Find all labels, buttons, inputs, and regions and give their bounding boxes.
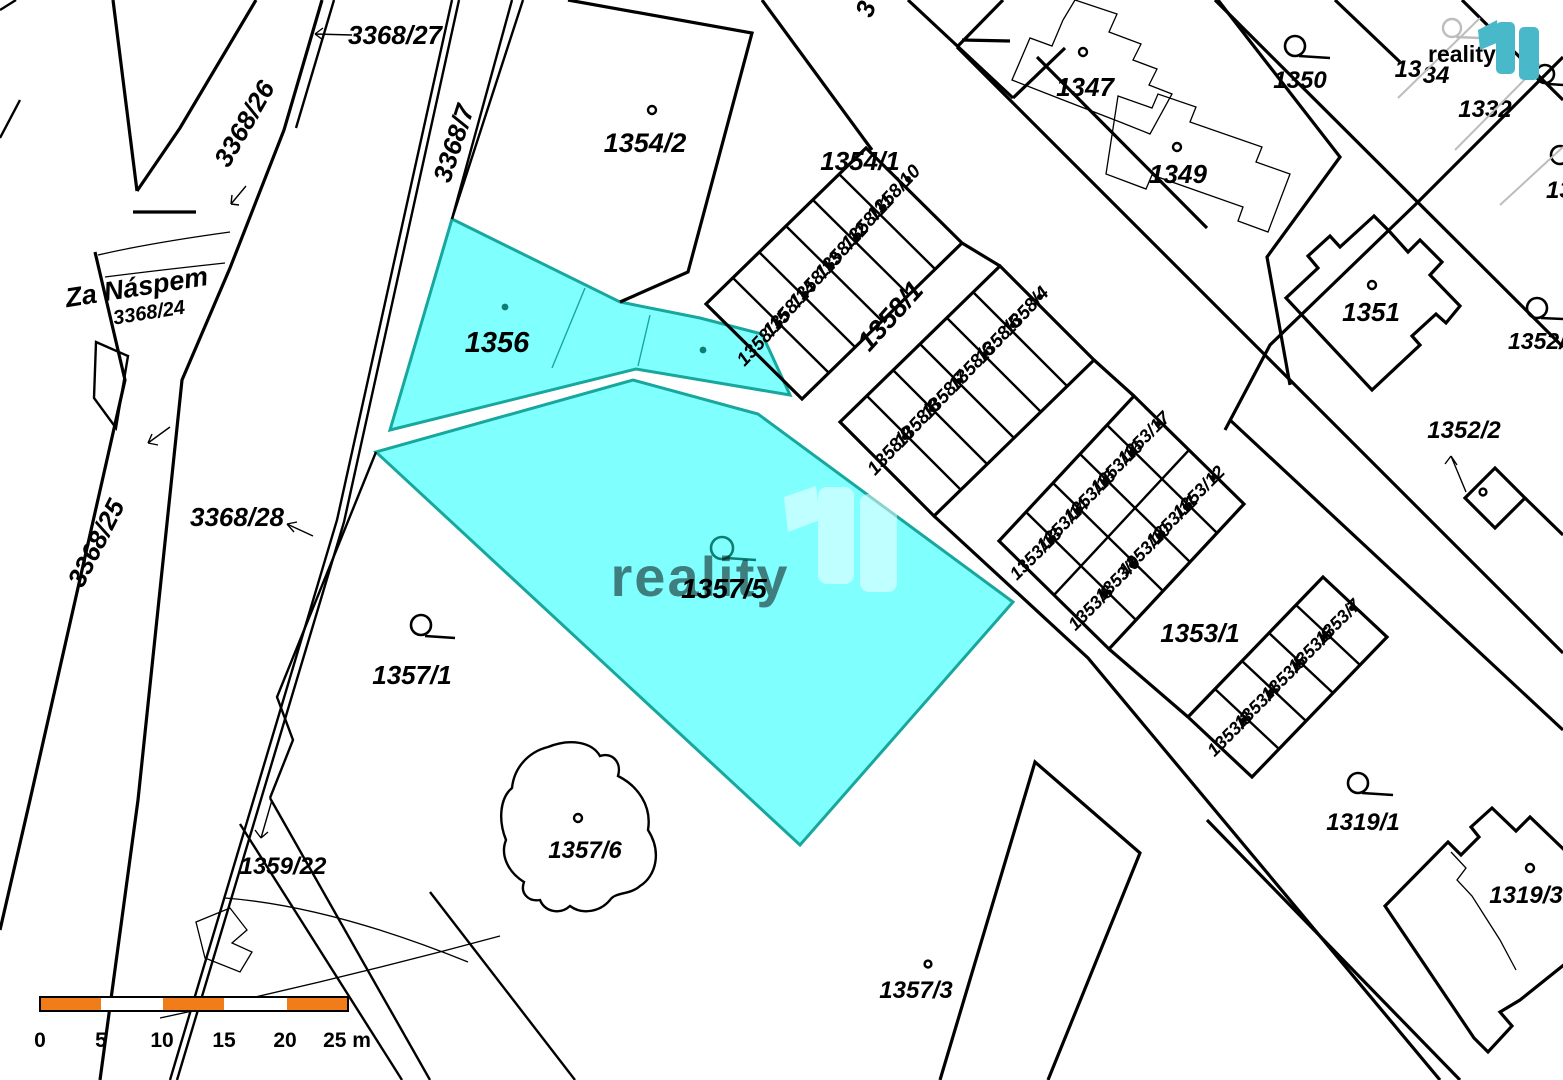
arrow-3368-28 xyxy=(287,522,313,536)
scale-tick-5: 5 xyxy=(95,1029,107,1052)
scale-tick-15: 15 xyxy=(212,1029,236,1052)
pond-1357-6 xyxy=(501,742,656,911)
parcel-label-1357-1: 1357/1 xyxy=(372,660,452,690)
landuse-icon xyxy=(411,615,455,638)
parcel-label-1352-2: 1352/2 xyxy=(1427,417,1501,444)
arrow-1352-2 xyxy=(1445,456,1466,492)
arrow-junction xyxy=(231,186,246,205)
parcel-label-1357-6: 1357/6 xyxy=(548,837,622,864)
parcel-label-1351: 1351 xyxy=(1342,297,1400,327)
parcel-label-1353-1: 1353/1 xyxy=(1160,618,1240,648)
landuse-icon xyxy=(1527,298,1563,319)
parcel-label-1354-2: 1354/2 xyxy=(604,128,687,158)
highlight-parcel-1357-5 xyxy=(376,380,1013,845)
building-1319-3-inner xyxy=(1451,852,1516,970)
landuse-icon xyxy=(1348,773,1393,795)
highlighted-parcels xyxy=(376,219,1013,845)
scale-tick-25m: 25 m xyxy=(323,1029,371,1052)
building-1352-2 xyxy=(1465,468,1525,528)
parcel-label-3368-27: 3368/27 xyxy=(348,20,444,50)
parcel-label-1359-22: 1359/22 xyxy=(240,853,327,880)
map-canvas: 3368/27 3368/26 3368/7 3 Za Náspem 3368/… xyxy=(0,0,1563,1080)
arrow-3368-27 xyxy=(315,28,352,40)
building-1319-3 xyxy=(1385,808,1563,1052)
scale-bar-labels: 0 5 10 15 20 25 m xyxy=(34,1029,371,1052)
scale-bar: 0 5 10 15 20 25 m xyxy=(34,997,371,1052)
parcel-label-1349: 1349 xyxy=(1149,159,1207,189)
parcel-label-3368-26: 3368/26 xyxy=(208,75,281,172)
parcel-label-1353-3: 1353/3 xyxy=(1203,707,1256,760)
edge-cut-label: 3 xyxy=(849,0,882,21)
landuse-icon xyxy=(1285,36,1330,58)
parcel-label-1354-1: 1354/1 xyxy=(820,146,900,176)
parcel-label-1347: 1347 xyxy=(1056,72,1115,102)
landuse-icon xyxy=(1536,65,1563,85)
arrow-3368-25 xyxy=(148,427,170,445)
parcel-label-1353-13: 1353/13 xyxy=(1006,524,1066,584)
parcel-label-1350: 1350 xyxy=(1273,67,1327,94)
parcel-label-3368-28: 3368/28 xyxy=(190,502,285,532)
parcel-label-1357-3: 1357/3 xyxy=(879,977,953,1004)
scale-tick-20: 20 xyxy=(273,1029,296,1052)
parcel-label-13-cut: 13 xyxy=(1546,177,1563,204)
parcel-label-3368-25: 3368/25 xyxy=(61,494,131,592)
parcel-label-1319-3: 1319/3 xyxy=(1489,882,1563,909)
parcel-label-1356: 1356 xyxy=(465,327,530,359)
scale-tick-10: 10 xyxy=(150,1029,173,1052)
watermark-text: reality xyxy=(611,545,790,608)
building-strip-1357-3 xyxy=(940,762,1140,1080)
cadastral-map: 3368/27 3368/26 3368/7 3 Za Náspem 3368/… xyxy=(0,0,1563,1080)
arrow-1359-22 xyxy=(255,800,272,838)
parcel-label-1353-8: 1353/8 xyxy=(1064,581,1117,634)
parcel-label-1352-cut: 1352/ xyxy=(1508,328,1563,354)
scale-tick-0: 0 xyxy=(34,1029,46,1052)
parcel-label-1319-1: 1319/1 xyxy=(1326,809,1399,836)
